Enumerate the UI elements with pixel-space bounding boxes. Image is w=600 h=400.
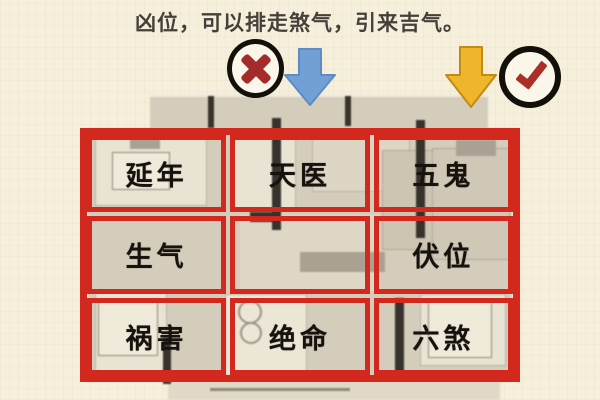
grid-cell-tianyi: 天医 <box>230 135 369 212</box>
grid-cell-jueming: 绝命 <box>230 298 369 375</box>
check-mark-icon <box>499 46 561 108</box>
floorplan-dimension-marks <box>210 388 350 391</box>
cell-label: 祸害 <box>126 317 188 356</box>
cell-label: 五鬼 <box>412 154 474 193</box>
fengshui-infographic: 凶位，可以排走煞气，引来吉气。 延年 天医 五鬼 生气 伏位 <box>0 0 600 400</box>
grid-cell-fuwei: 伏位 <box>374 216 513 293</box>
floorplan-wall <box>208 96 214 128</box>
grid-cell-wugui: 五鬼 <box>374 135 513 212</box>
grid-cell-yannian: 延年 <box>87 135 226 212</box>
grid-cell-center <box>230 216 369 293</box>
floorplan-wall <box>345 96 351 126</box>
grid-cell-shengqi: 生气 <box>87 216 226 293</box>
cell-label: 六煞 <box>412 317 474 356</box>
grid-cell-huohai: 祸害 <box>87 298 226 375</box>
yellow-down-arrow-icon <box>445 46 497 108</box>
check-tick <box>515 55 547 90</box>
cell-label: 生气 <box>126 235 188 274</box>
blue-down-arrow-icon <box>284 48 336 106</box>
page-title: 凶位，可以排走煞气，引来吉气。 <box>0 7 600 37</box>
cell-label: 延年 <box>126 154 188 193</box>
cross-mark-icon <box>227 39 284 98</box>
cell-label: 伏位 <box>412 235 474 274</box>
bagua-grid: 延年 天医 五鬼 生气 伏位 祸害 绝命 六煞 <box>80 128 520 382</box>
cell-label: 绝命 <box>269 317 331 356</box>
grid-cell-liusha: 六煞 <box>374 298 513 375</box>
cell-label: 天医 <box>269 154 331 193</box>
